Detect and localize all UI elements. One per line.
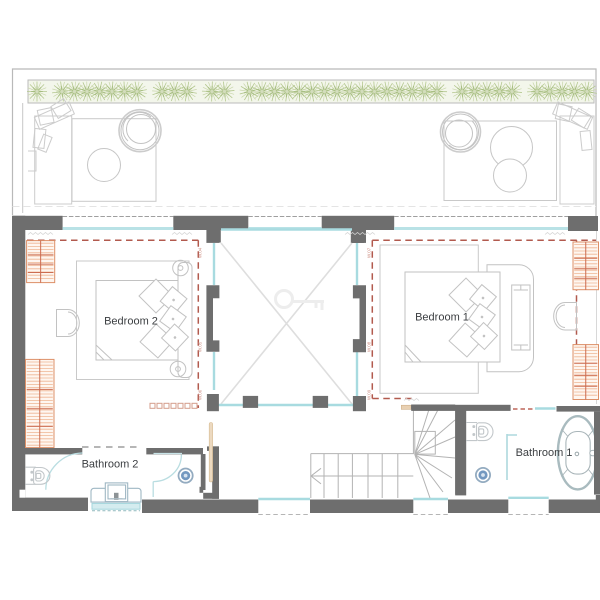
svg-text:Bedroom 1: Bedroom 1 <box>415 312 469 324</box>
svg-text:W.04: W.04 <box>198 247 203 258</box>
svg-text:Bathroom 2: Bathroom 2 <box>82 459 139 471</box>
svg-text:W.07: W.07 <box>367 247 372 258</box>
svg-text:W.08: W.08 <box>367 341 372 352</box>
svg-text:W.09: W.09 <box>367 389 372 400</box>
svg-text:Bathroom 1: Bathroom 1 <box>516 447 573 459</box>
svg-text:W.06: W.06 <box>198 389 203 400</box>
svg-text:Bedroom 2: Bedroom 2 <box>104 316 158 328</box>
svg-text:W.05: W.05 <box>198 341 203 352</box>
